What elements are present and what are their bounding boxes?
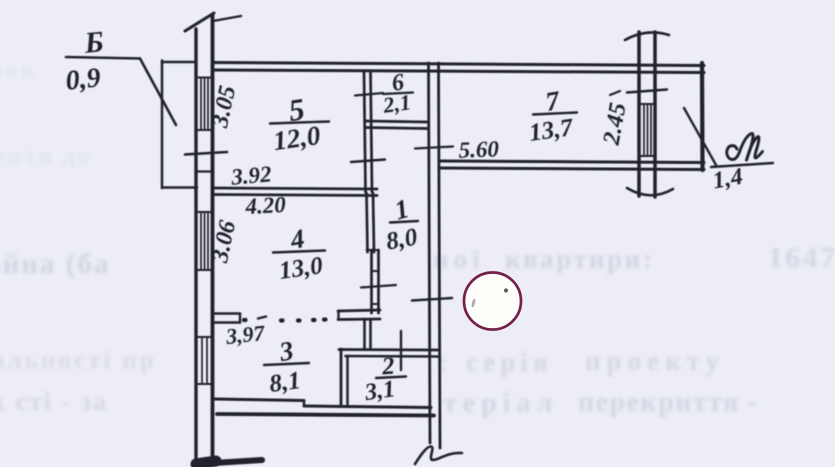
svg-text:айна (ба: айна (ба (0, 248, 110, 280)
svg-text:проекту: проекту (585, 346, 725, 376)
svg-text:0,9: 0,9 (64, 62, 102, 96)
svg-text:серія: серія (466, 347, 552, 377)
svg-text:1647: 1647 (768, 242, 835, 274)
svg-text:ної: ної (433, 244, 485, 274)
svg-text:квартири:: квартири: (505, 244, 654, 274)
svg-text:8,1: 8,1 (268, 367, 303, 398)
svg-text:8,0: 8,0 (384, 224, 420, 256)
svg-text:альності пр: альності пр (0, 347, 157, 374)
svg-text:5.60: 5.60 (458, 136, 500, 162)
svg-text:3,97: 3,97 (224, 320, 267, 349)
svg-text:4.20: 4.20 (244, 192, 287, 219)
svg-text:Б: Б (82, 25, 105, 60)
svg-text:3.92: 3.92 (229, 161, 272, 190)
svg-text:пов: пов (0, 57, 37, 84)
svg-text:3,1: 3,1 (362, 376, 396, 406)
svg-text:х сті - за: х сті - за (0, 387, 108, 416)
svg-text:перекриття -: перекриття - (578, 387, 759, 418)
svg-text:теріал: теріал (443, 388, 559, 419)
svg-text:енти до: енти до (0, 143, 92, 170)
svg-text:2,1: 2,1 (381, 89, 413, 118)
svg-text:1,4: 1,4 (711, 164, 745, 195)
